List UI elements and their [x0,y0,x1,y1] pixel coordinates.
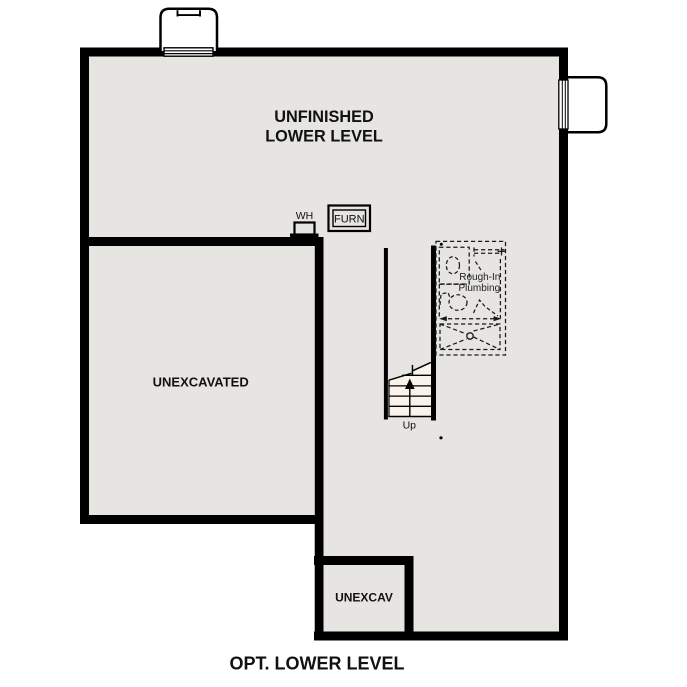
svg-text:WH: WH [296,210,314,222]
svg-text:UNEXCAVATED: UNEXCAVATED [153,375,249,390]
svg-text:OPT. LOWER LEVEL: OPT. LOWER LEVEL [229,654,404,674]
svg-text:UNEXCAV: UNEXCAV [335,591,393,605]
svg-text:Plumbing: Plumbing [458,283,500,294]
svg-text:FURN: FURN [334,214,365,226]
svg-text:LOWER LEVEL: LOWER LEVEL [265,128,383,146]
svg-text:Up: Up [403,420,417,432]
svg-text:Rough-In: Rough-In [459,272,500,283]
svg-text:UNFINISHED: UNFINISHED [274,108,374,126]
